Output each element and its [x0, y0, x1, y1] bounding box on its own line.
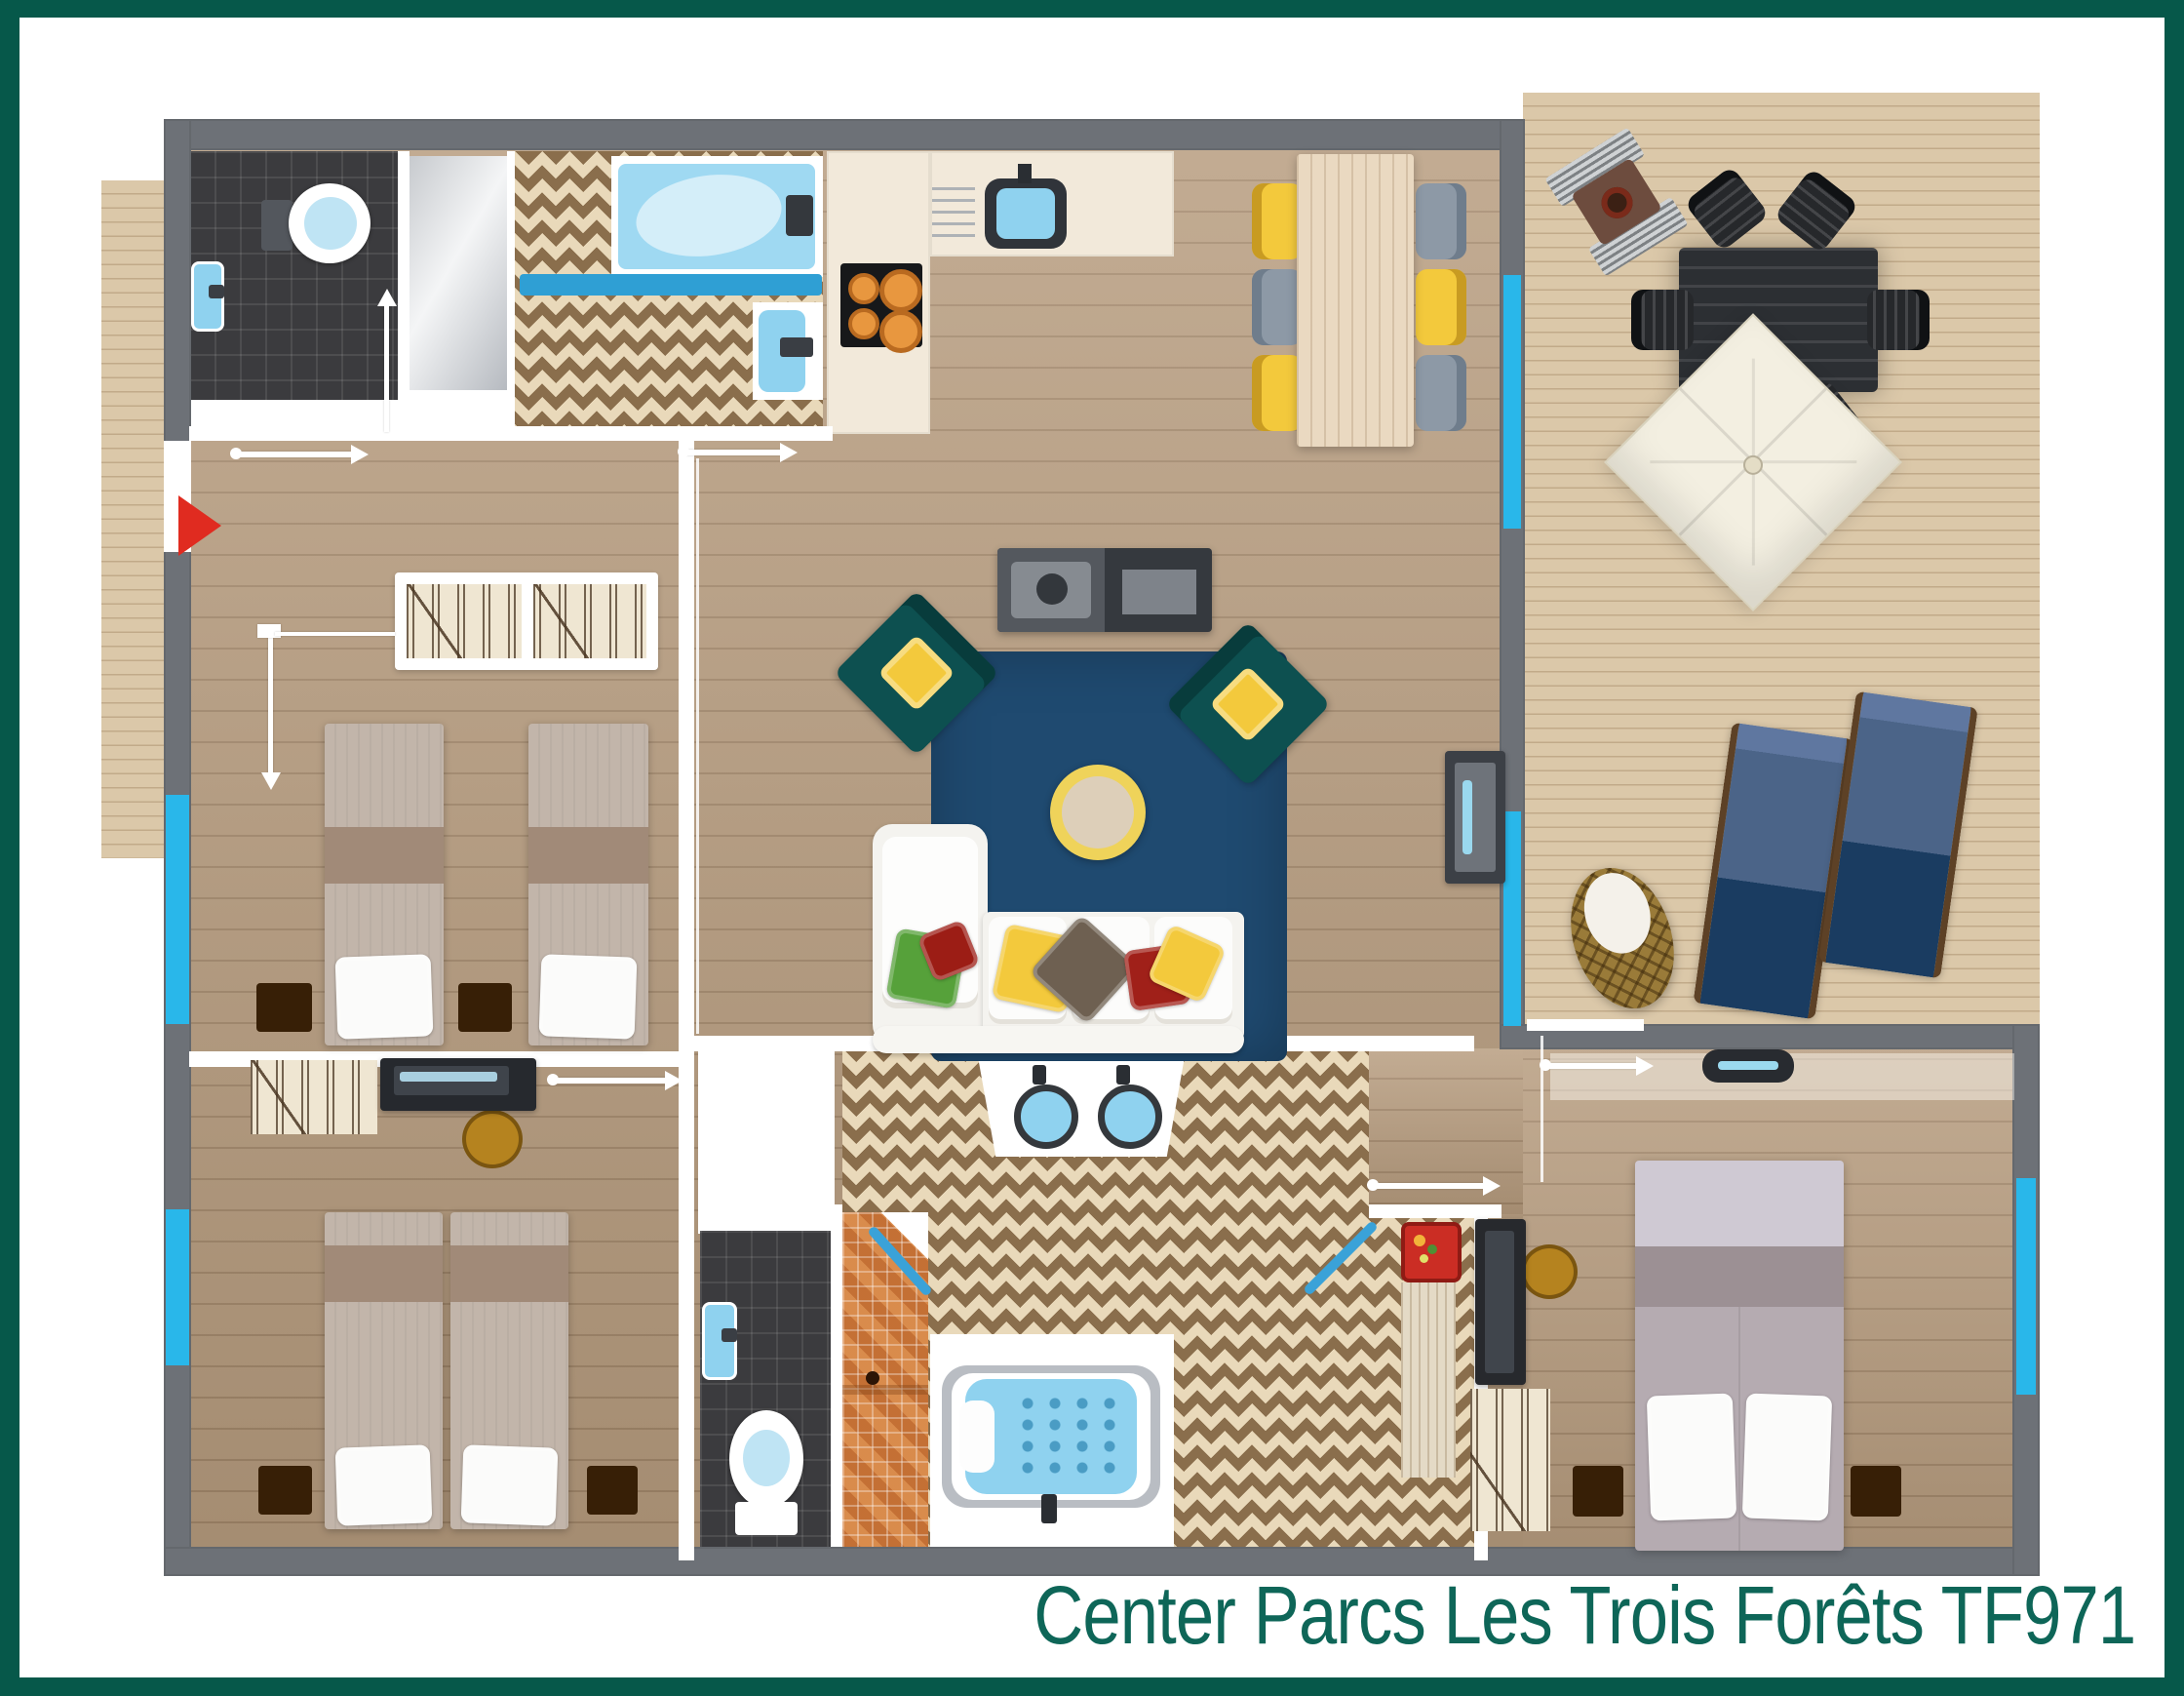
bed-pillow [539, 954, 638, 1039]
dimension-arrow [351, 445, 369, 464]
bedroom-2-rug [251, 1060, 377, 1134]
stool-icon [462, 1110, 523, 1168]
dimension-node [678, 446, 689, 457]
dining-chair [1252, 183, 1303, 259]
bed-blanket-band [325, 1245, 443, 1302]
dimension-line [552, 1078, 671, 1084]
bed-pillow [1742, 1394, 1832, 1521]
wall-top [164, 119, 1523, 150]
burner [848, 273, 879, 304]
shower-room-floor [409, 156, 507, 390]
dimension-line [696, 458, 699, 1034]
dimension-arrow [377, 289, 397, 306]
cooker-hood-vent-icon [932, 187, 975, 238]
floral-detail [1420, 1254, 1428, 1263]
dimension-node [547, 1074, 559, 1085]
nightstand [1851, 1466, 1901, 1517]
nightstand [258, 1466, 312, 1515]
nightstand [458, 983, 512, 1032]
kitchen-sink-water [996, 188, 1055, 239]
wc-2-entry [698, 1048, 835, 1234]
towel-rail-icon [520, 274, 822, 296]
shower-drain [866, 1371, 879, 1385]
partition [507, 151, 515, 441]
sideboard-top [1455, 763, 1496, 872]
dining-chair [1416, 355, 1466, 431]
kitchen-sink-tap [1018, 164, 1032, 183]
washbasin-tap [780, 337, 813, 357]
nightstand [587, 1466, 638, 1515]
window [1503, 275, 1521, 529]
burner [879, 269, 922, 312]
dimension-arrow [780, 443, 798, 462]
runner-rug [1401, 1282, 1456, 1478]
partition-bedrooms [679, 441, 694, 1560]
dimension-arrow [1636, 1056, 1654, 1076]
dimension-node [1367, 1179, 1379, 1191]
window [2016, 1178, 2036, 1395]
dimension-line [268, 634, 273, 778]
floor-plan-caption: Center Parcs Les Trois Forêts TF971 [1033, 1572, 2135, 1658]
outdoor-chair [1867, 290, 1930, 350]
outdoor-chair [1631, 290, 1694, 350]
floral-detail [1414, 1235, 1425, 1246]
walk-in-shower-floor [842, 1212, 928, 1551]
floral-detail [1427, 1244, 1437, 1254]
desk-top [1485, 1231, 1514, 1373]
wardrobe-panel [533, 584, 646, 658]
bed-blanket-band [450, 1245, 568, 1302]
washbasin-tap [1116, 1065, 1130, 1085]
dimension-line [384, 297, 389, 432]
parasol-pole [1739, 452, 1767, 479]
toilet-bowl [304, 197, 357, 250]
wall-heater-vent [1718, 1061, 1778, 1070]
bed-pillow [1647, 1394, 1736, 1521]
partition-bedroom-3-top [1369, 1204, 1501, 1218]
desk-screen [400, 1072, 497, 1082]
terrace-door [1527, 1019, 1644, 1031]
washbasin-tap [209, 285, 224, 298]
dimension-line [682, 450, 786, 455]
window [166, 795, 189, 1024]
coffee-table-top [1062, 776, 1134, 848]
shower-divider [842, 1385, 928, 1395]
floor-plan-image: Center Parcs Les Trois Forêts TF971 [0, 0, 2184, 1696]
dimension-line [275, 632, 395, 636]
window [1503, 811, 1521, 1026]
bed-pillow [335, 954, 434, 1039]
dimension-line [1540, 1036, 1543, 1182]
dimension-node [230, 448, 242, 459]
nightstand [1573, 1466, 1623, 1517]
nightstand [256, 983, 312, 1032]
partition-bath-block [189, 426, 833, 441]
bed-blanket-band [325, 827, 444, 884]
entrance-deck [101, 180, 164, 858]
sofa-backrest [873, 1026, 1244, 1053]
dimension-line [1544, 1063, 1642, 1069]
dining-chair [1416, 269, 1466, 345]
partition [398, 151, 409, 441]
bed-pillow [461, 1444, 559, 1525]
bed-blanket-band [528, 827, 648, 884]
dimension-line [234, 452, 357, 457]
burner [879, 310, 922, 353]
dimension-arrow [1483, 1176, 1501, 1196]
dining-chair [1252, 355, 1303, 431]
dining-chair [1252, 269, 1303, 345]
bedroom-3-rug [1470, 1389, 1550, 1531]
dimension-arrow [261, 772, 281, 790]
washbasin-tap [721, 1328, 737, 1342]
entrance-arrow-icon [178, 495, 221, 556]
burner [848, 308, 879, 339]
spa-jets [1014, 1393, 1123, 1480]
spa-faucet [1041, 1494, 1057, 1523]
stool-icon [1521, 1244, 1578, 1299]
washbasin-icon [1098, 1085, 1162, 1149]
partition [831, 1204, 842, 1560]
sideboard-glint [1462, 780, 1472, 854]
dimension-arrow [665, 1071, 682, 1090]
bed-pillow [335, 1444, 433, 1525]
tv-screen [1122, 570, 1196, 614]
dining-chair [1416, 183, 1466, 259]
wardrobe-panel [407, 584, 522, 658]
bathtub-faucet [786, 195, 813, 236]
washbasin-tap [1033, 1065, 1046, 1085]
dining-table [1297, 154, 1414, 447]
spa-headrest [959, 1400, 994, 1473]
toilet-bowl [743, 1430, 790, 1486]
window [166, 1209, 189, 1365]
washbasin-icon [1014, 1085, 1078, 1149]
dimension-line [1372, 1183, 1489, 1189]
tv-speaker [1036, 573, 1068, 605]
dimension-node [1540, 1059, 1551, 1071]
toilet-tank [735, 1502, 798, 1535]
